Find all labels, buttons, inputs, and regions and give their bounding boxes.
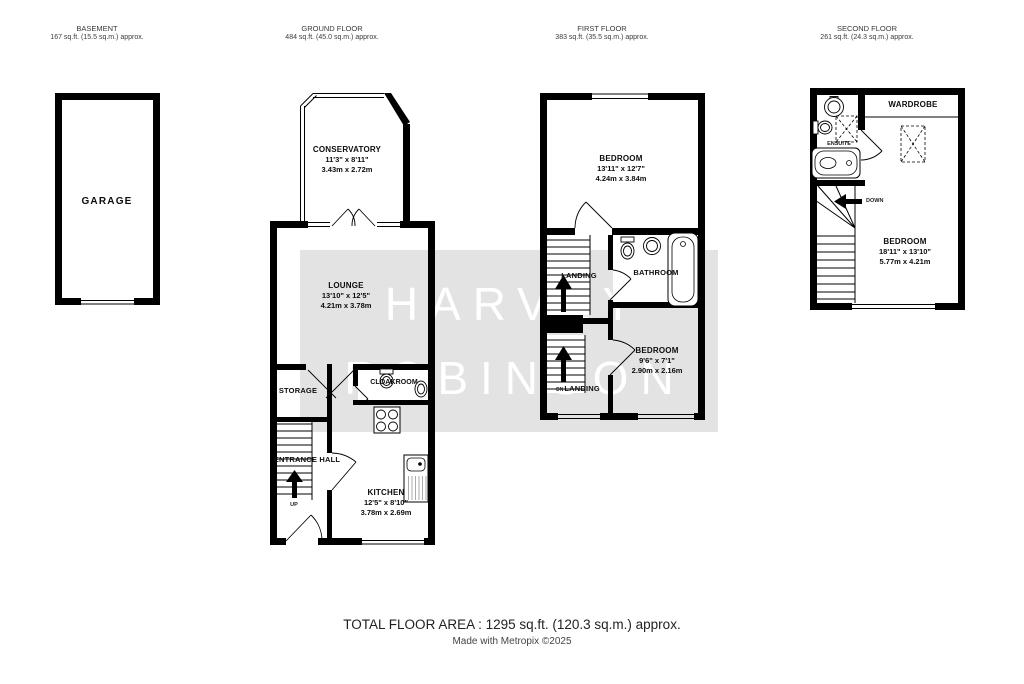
floor-title-second: SECOND FLOOR 261 sq.ft. (24.3 sq.m.) app… [820,24,913,42]
stairs-down-label: DN [556,387,563,393]
ensuite-door [861,130,882,160]
hob-icon [374,407,400,433]
floorplan-canvas: HARVEY ROBINSON [0,0,1024,684]
room-label-bedroom3: BEDROOM 18'11" x 13'10" 5.77m x 4.21m [879,237,931,267]
shower-icon [836,116,857,142]
floorplan-linework [0,0,1024,684]
room-label-ensuite: ENSUITE [827,141,851,148]
room-label-cloakroom: CLOAKROOM [370,379,418,387]
wardrobe-hanging-icon [901,126,925,162]
credit-text: Made with Metropix ©2025 [0,636,1024,647]
second-windows [852,305,935,309]
room-label-kitchen: KITCHEN 12'5" x 8'10" 3.78m x 2.69m [361,488,412,518]
floor-area-text: 484 sq.ft. (45.0 sq.m.) approx. [285,33,378,42]
down-arrow-icon [834,194,862,209]
basin-icon [644,238,661,255]
floor-title-text: GROUND FLOOR [285,24,378,33]
basin-icon [825,97,844,117]
floor-title-ground: GROUND FLOOR 484 sq.ft. (45.0 sq.m.) app… [285,24,378,42]
room-label-bedroom1: BEDROOM 13'11" x 12'7" 4.24m x 3.84m [596,154,647,184]
garage-door-icon [81,301,134,305]
stairs-down-label: DOWN [866,198,883,205]
room-label-conservatory: CONSERVATORY 11'3" x 8'11" 3.43m x 2.72m [313,145,381,175]
floor-title-text: SECOND FLOOR [820,24,913,33]
room-label-bathroom: BATHROOM [633,268,678,277]
second-walls [810,88,965,310]
room-label-lounge: LOUNGE 13'10" x 12'5" 4.21m x 3.78m [321,281,372,311]
stairs-up-label: UP [290,502,298,509]
bath-icon [812,148,860,178]
floor-title-basement: BASEMENT 167 sq.ft. (15.5 sq.m.) approx. [50,24,143,42]
floor-area-text: 383 sq.ft. (35.5 sq.m.) approx. [555,33,648,42]
room-label-landing-upper: LANDING [561,271,597,280]
toilet-icon [813,121,832,134]
floor-title-first: FIRST FLOOR 383 sq.ft. (35.5 sq.m.) appr… [555,24,648,42]
room-label-storage: STORAGE [279,386,317,395]
room-label-entrance-hall: ENTRANCE HALL [274,455,340,464]
toilet-icon [621,237,634,259]
room-label-landing-lower: DN LANDING [556,384,600,393]
room-label-wardrobe: WARDROBE [888,100,937,110]
second-floor-plan [810,88,965,310]
room-label-bedroom2: BEDROOM 9'6" x 7'1" 2.90m x 2.16m [632,346,683,376]
floor-title-text: FIRST FLOOR [555,24,648,33]
floor-area-text: 261 sq.ft. (24.3 sq.m.) approx. [820,33,913,42]
floor-title-text: BASEMENT [50,24,143,33]
room-label-garage: GARAGE [81,196,132,208]
floor-area-text: 167 sq.ft. (15.5 sq.m.) approx. [50,33,143,42]
total-floor-area-text: TOTAL FLOOR AREA : 1295 sq.ft. (120.3 sq… [0,617,1024,632]
